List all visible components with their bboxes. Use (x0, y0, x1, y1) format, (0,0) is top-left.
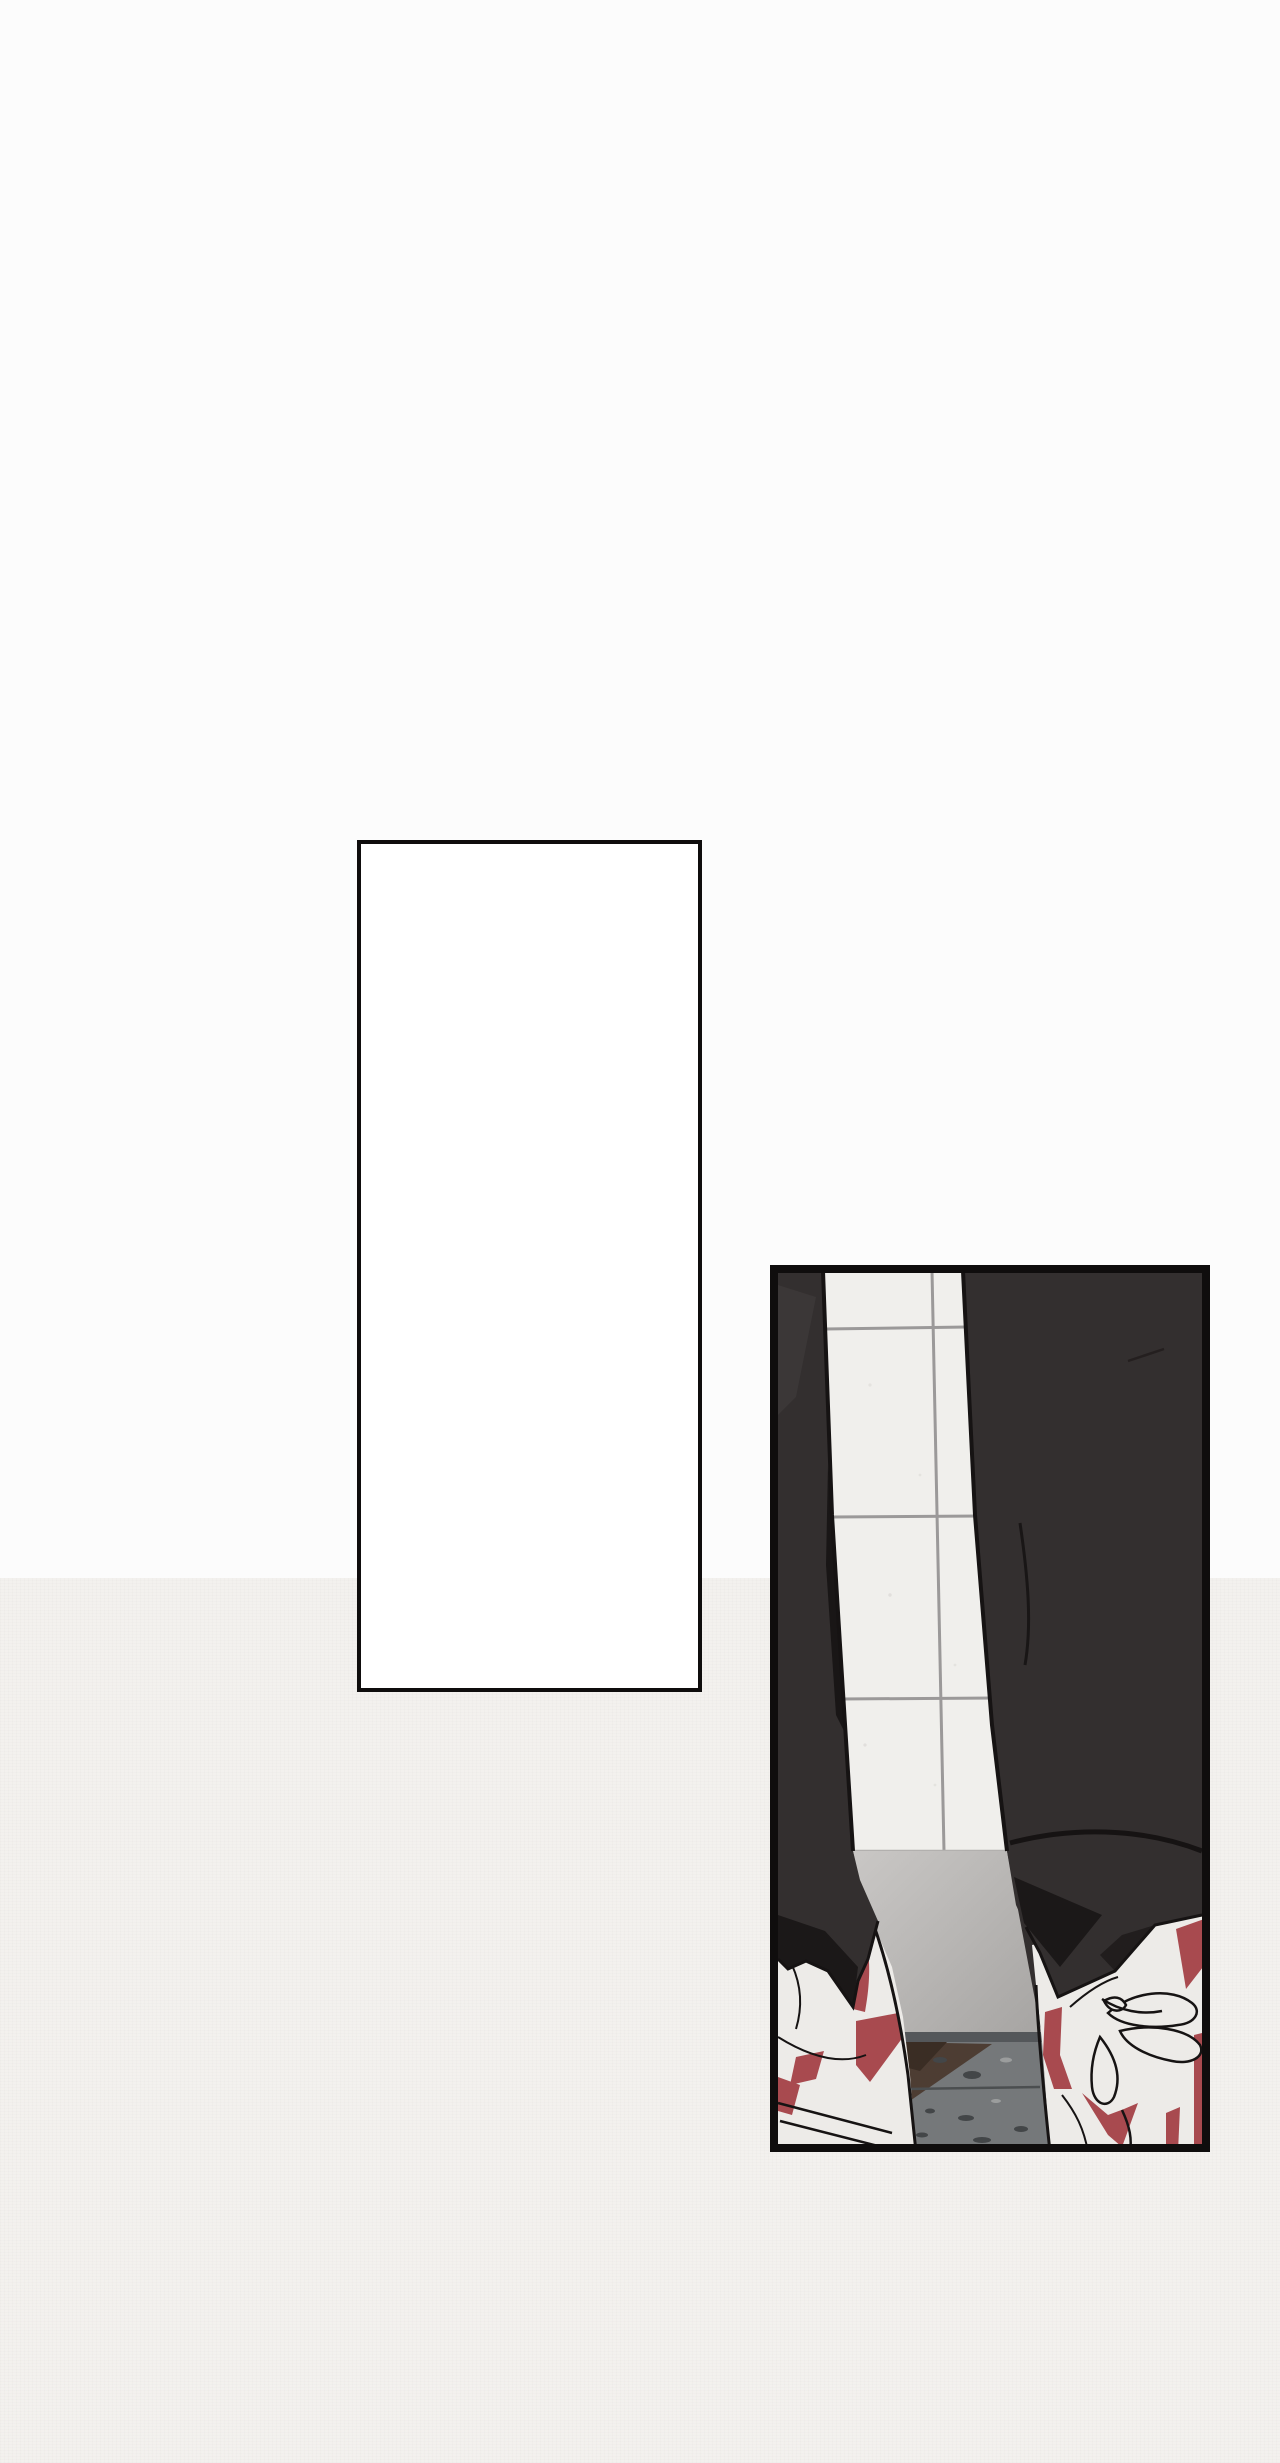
scene-illustration (770, 1265, 1210, 2152)
comic-page (0, 0, 1280, 2463)
floor-seam-band (888, 2032, 1042, 2043)
empty-panel (357, 840, 702, 1692)
scene-panel (770, 1265, 1210, 2152)
